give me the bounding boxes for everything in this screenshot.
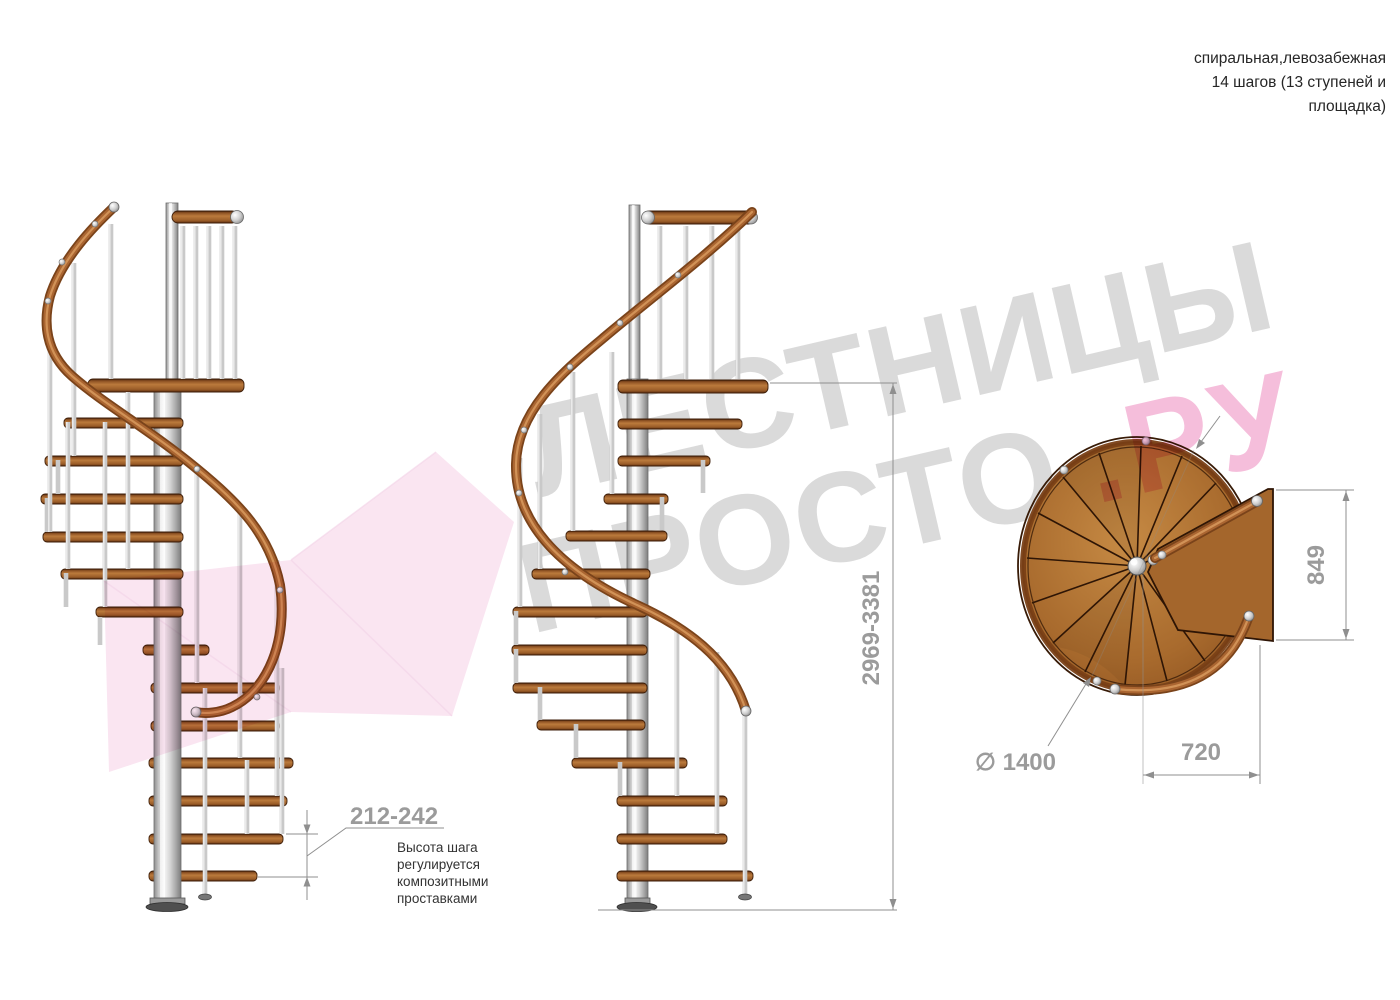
front-elevation-view <box>41 202 293 912</box>
handrail-end-cap <box>741 706 751 716</box>
handrail-joint <box>562 569 568 575</box>
dim-diameter-value: ∅ 1400 <box>975 749 1056 776</box>
step-board <box>537 720 645 730</box>
handrail-joint <box>567 364 573 370</box>
rim-baluster <box>1060 466 1068 474</box>
dim-step-height-note: Высота шага <box>397 840 478 855</box>
step-board <box>618 456 710 466</box>
drawing-title-line: 14 шагов (13 ступеней и <box>1212 74 1386 91</box>
dim-step-height-value: 212-242 <box>350 803 438 830</box>
handrail-joint <box>617 320 623 326</box>
dimension-step-height: 212-242 Высота шага регулируется компози… <box>258 803 488 906</box>
watermark-arrow-tail <box>104 560 291 772</box>
handrail-end-cap <box>109 202 119 212</box>
drawing-title-line: площадка) <box>1308 98 1386 115</box>
dim-step-height-note: регулируется <box>397 857 480 872</box>
handrail-joint <box>194 466 200 472</box>
step-board <box>572 758 687 768</box>
step-board <box>617 871 753 881</box>
watermark-arrow-head <box>291 452 514 716</box>
dim-landing-depth-value: 849 <box>1303 545 1330 585</box>
handrail-end-cap <box>1110 684 1120 694</box>
step-board <box>617 796 727 806</box>
handrail-joint <box>45 298 51 304</box>
technical-drawing: ЛЕСТНИЦЫ ПРОСТО <box>0 0 1400 1000</box>
handrail-joint <box>521 427 527 433</box>
handrail-end-cap <box>1244 611 1254 621</box>
step-board <box>43 532 183 542</box>
baluster-foot <box>199 894 212 900</box>
dimension-landing-depth: 849 <box>1276 490 1354 640</box>
title-block: спиральная,левозабежная 14 шагов (13 сту… <box>1194 50 1386 115</box>
rail-bar-cap <box>642 211 655 224</box>
front-top-rail-bar <box>172 211 238 223</box>
step-board <box>604 494 668 504</box>
handrail-joint <box>516 490 522 496</box>
pole-base-flange <box>146 903 188 912</box>
handrail-joint <box>92 221 98 227</box>
platform-board <box>618 380 768 393</box>
step-board <box>512 645 647 655</box>
step-board <box>513 683 647 693</box>
handrail-joint <box>1158 551 1166 559</box>
platform-board <box>88 379 244 392</box>
rim-baluster <box>1093 677 1101 685</box>
dim-clear-width-value: 720 <box>1181 739 1221 766</box>
drawing-title-line: спиральная,левозабежная <box>1194 50 1386 67</box>
handrail-joint <box>59 259 65 265</box>
baluster-foot <box>739 894 752 900</box>
dim-step-height-note: композитными <box>397 874 488 889</box>
handrail-joint <box>675 272 681 278</box>
step-board <box>41 494 183 504</box>
rail-bar-cap <box>231 211 244 224</box>
step-board <box>566 531 667 541</box>
dim-step-height-note: проставками <box>397 891 477 906</box>
step-board <box>513 607 647 617</box>
dim-total-height-value: 2969-3381 <box>858 571 885 686</box>
step-board <box>618 419 742 429</box>
step-board <box>617 834 727 844</box>
drawing-canvas: ЛЕСТНИЦЫ ПРОСТО <box>0 0 1400 1000</box>
handrail-end-cap <box>1252 496 1263 507</box>
